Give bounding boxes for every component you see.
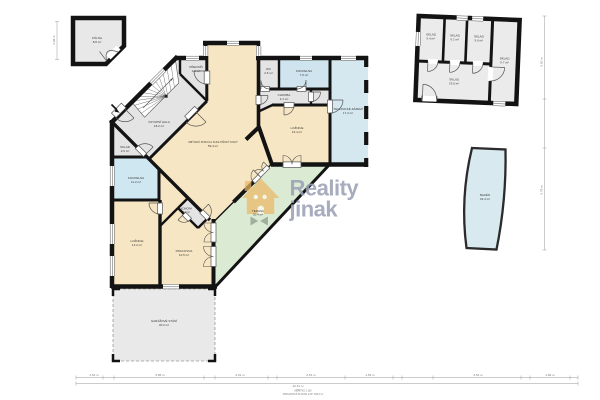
svg-text:59.4 m²: 59.4 m² xyxy=(208,144,218,148)
svg-text:18.2 m²: 18.2 m² xyxy=(154,124,164,128)
svg-text:2.6 m²: 2.6 m² xyxy=(264,71,273,75)
svg-text:5.6 m²: 5.6 m² xyxy=(474,38,483,42)
svg-text:1.84 m: 1.84 m xyxy=(545,373,555,377)
svg-text:5.86 m: 5.86 m xyxy=(155,373,165,377)
svg-text:11.2 m²: 11.2 m² xyxy=(131,180,141,184)
svg-text:4.01 m: 4.01 m xyxy=(235,373,245,377)
svg-text:33.4 m²: 33.4 m² xyxy=(480,197,490,201)
svg-text:22.41 m: 22.41 m xyxy=(293,384,304,388)
svg-text:MĚŘÍTKO 1:100: MĚŘÍTKO 1:100 xyxy=(295,389,313,392)
svg-text:PODLAHOVÁ PLOCHA 1.NP: 158.2 m: PODLAHOVÁ PLOCHA 1.NP: 158.2 m² xyxy=(283,393,324,396)
svg-text:2.08 m: 2.08 m xyxy=(52,35,56,45)
svg-text:4.54 m: 4.54 m xyxy=(473,373,483,377)
svg-text:7.6 m²: 7.6 m² xyxy=(300,73,309,77)
svg-text:5.7 m²: 5.7 m² xyxy=(500,60,509,64)
svg-text:17.2 m²: 17.2 m² xyxy=(343,111,353,115)
svg-text:30.2 m²: 30.2 m² xyxy=(159,323,169,327)
svg-text:5.4 m²: 5.4 m² xyxy=(426,36,435,40)
svg-text:2.51 m: 2.51 m xyxy=(306,373,316,377)
svg-text:2.6 m²: 2.6 m² xyxy=(121,149,130,153)
svg-text:23.8 m²: 23.8 m² xyxy=(449,81,459,85)
svg-text:10.5 m²: 10.5 m² xyxy=(179,253,189,257)
svg-text:1.52 m: 1.52 m xyxy=(89,373,99,377)
svg-text:4.6 m²: 4.6 m² xyxy=(192,69,201,73)
svg-text:30.4 m²: 30.4 m² xyxy=(253,213,263,217)
svg-text:1.54 m: 1.54 m xyxy=(365,373,375,377)
svg-text:5.1 m²: 5.1 m² xyxy=(450,37,459,41)
svg-text:4.1 m²: 4.1 m² xyxy=(280,97,289,101)
svg-text:6.50 m: 6.50 m xyxy=(540,57,544,67)
svg-text:16.4 m²: 16.4 m² xyxy=(292,130,302,134)
svg-text:jinak: jinak xyxy=(289,197,339,222)
svg-text:13.2 m²: 13.2 m² xyxy=(132,243,142,247)
svg-text:4.0 m²: 4.0 m² xyxy=(183,211,190,214)
svg-text:8.8 m²: 8.8 m² xyxy=(93,40,102,44)
svg-text:6.78 m: 6.78 m xyxy=(540,185,544,195)
